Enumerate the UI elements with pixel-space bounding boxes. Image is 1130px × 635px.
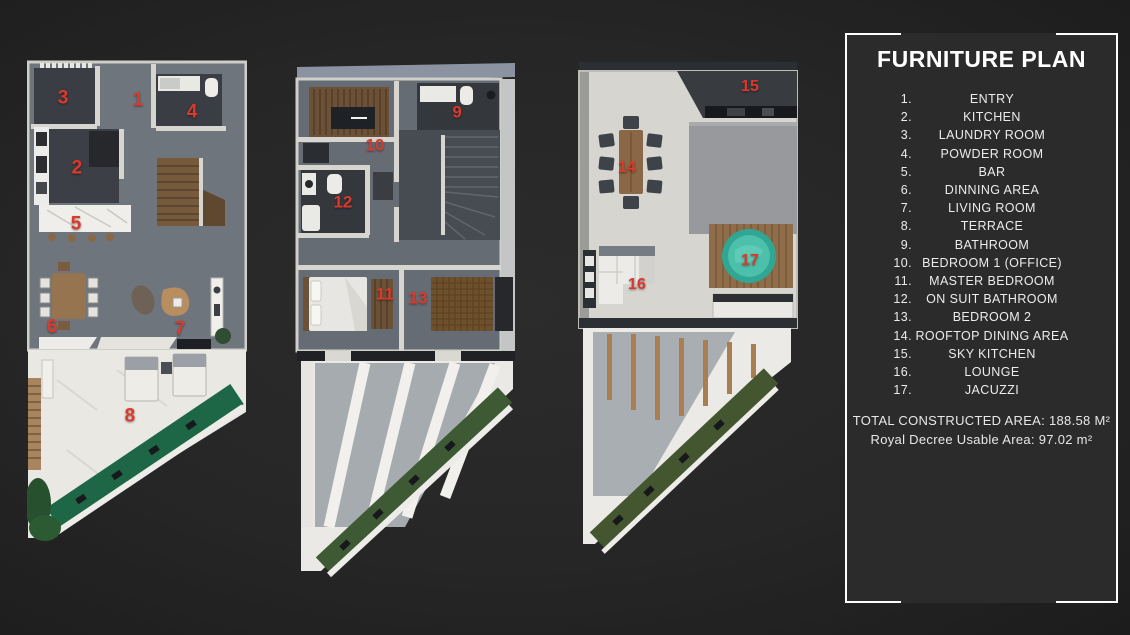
- rooftop-plan: 15141716: [577, 60, 799, 560]
- legend-item-number: 12.: [845, 292, 912, 306]
- legend-item-label: LIVING ROOM: [912, 201, 1072, 215]
- room-number-6: 6: [47, 318, 58, 337]
- legend-item-label: ROOFTOP DINING AREA: [912, 329, 1072, 343]
- page-title: FURNITURE PLAN: [845, 46, 1118, 73]
- legend-item: 4. POWDER ROOM: [845, 145, 1118, 163]
- room-number-5: 5: [71, 214, 82, 233]
- legend-item: 3. LAUNDRY ROOM: [845, 126, 1118, 144]
- legend-item: 14. ROOFTOP DINING AREA: [845, 326, 1118, 344]
- legend-item-label: MASTER BEDROOM: [912, 274, 1072, 288]
- legend-item-number: 2.: [845, 110, 912, 124]
- furniture-plan-sheet: 31425678: [0, 0, 1130, 635]
- room-number-7: 7: [175, 320, 186, 339]
- room-number-8: 8: [125, 406, 136, 425]
- legend-item-number: 10.: [845, 256, 912, 270]
- rooftop-markers: 15141716: [577, 60, 799, 560]
- legend-item-number: 4.: [845, 147, 912, 161]
- room-number-9: 9: [452, 104, 461, 121]
- panel-frame-top-right-bracket: [1056, 33, 1118, 35]
- room-number-10: 10: [365, 136, 384, 153]
- legend-item-label: BEDROOM 2: [912, 310, 1072, 324]
- legend-item-number: 14.: [845, 329, 912, 343]
- legend-item-label: ON SUIT BATHROOM: [912, 292, 1072, 306]
- panel-frame-bottom-left-bracket: [845, 601, 901, 603]
- legend-item: 15. SKY KITCHEN: [845, 345, 1118, 363]
- room-number-4: 4: [187, 102, 198, 121]
- legend-item: 6. DINNING AREA: [845, 181, 1118, 199]
- legend-item-label: BAR: [912, 165, 1072, 179]
- legend-item: 11. MASTER BEDROOM: [845, 272, 1118, 290]
- usable-area: Royal Decree Usable Area: 97.02 m²: [845, 430, 1118, 449]
- legend-item-label: LOUNGE: [912, 365, 1072, 379]
- area-summary: TOTAL CONSTRUCTED AREA: 188.58 M² Royal …: [845, 411, 1118, 449]
- room-number-12: 12: [333, 194, 352, 211]
- legend-item-number: 8.: [845, 219, 912, 233]
- legend-item-number: 6.: [845, 183, 912, 197]
- room-number-16: 16: [628, 277, 646, 293]
- legend-item-label: BEDROOM 1 (OFFICE): [912, 256, 1072, 270]
- legend-item-number: 16.: [845, 365, 912, 379]
- room-number-13: 13: [409, 289, 428, 306]
- first-floor-plan: 910121113: [295, 57, 517, 577]
- legend-item: 7. LIVING ROOM: [845, 199, 1118, 217]
- legend-item: 10. BEDROOM 1 (OFFICE): [845, 254, 1118, 272]
- legend-item-label: DINNING AREA: [912, 183, 1072, 197]
- legend-item-number: 17.: [845, 383, 912, 397]
- legend-item: 17. JACUZZI: [845, 381, 1118, 399]
- room-number-15: 15: [741, 79, 759, 95]
- legend-item: 13. BEDROOM 2: [845, 308, 1118, 326]
- panel-frame-top-left-bracket: [845, 33, 901, 35]
- legend-item-label: POWDER ROOM: [912, 147, 1072, 161]
- legend-item: 16. LOUNGE: [845, 363, 1118, 381]
- room-number-11: 11: [376, 286, 394, 303]
- legend-item-label: KITCHEN: [912, 110, 1072, 124]
- legend-item: 1. ENTRY: [845, 90, 1118, 108]
- legend-panel: FURNITURE PLAN 1. ENTRY 2. KITCHEN 3. LA…: [845, 33, 1118, 603]
- total-constructed-area: TOTAL CONSTRUCTED AREA: 188.58 M²: [845, 411, 1118, 430]
- legend-item: 9. BATHROOM: [845, 236, 1118, 254]
- legend-item: 2. KITCHEN: [845, 108, 1118, 126]
- legend-item-number: 1.: [845, 92, 912, 106]
- legend-item-number: 3.: [845, 128, 912, 142]
- room-number-17: 17: [741, 253, 759, 269]
- ground-floor-plan: 31425678: [27, 60, 247, 545]
- room-number-1: 1: [133, 90, 144, 109]
- legend-item: 8. TERRACE: [845, 217, 1118, 235]
- legend-item-label: SKY KITCHEN: [912, 347, 1072, 361]
- legend-item-label: ENTRY: [912, 92, 1072, 106]
- ground-floor-markers: 31425678: [27, 60, 247, 545]
- legend-item-number: 13.: [845, 310, 912, 324]
- legend-item-number: 15.: [845, 347, 912, 361]
- legend-item: 5. BAR: [845, 163, 1118, 181]
- legend-item-label: JACUZZI: [912, 383, 1072, 397]
- legend-item-number: 5.: [845, 165, 912, 179]
- legend-item-number: 11.: [845, 274, 912, 288]
- legend-item-number: 9.: [845, 238, 912, 252]
- first-floor-markers: 910121113: [295, 57, 517, 577]
- legend-item-number: 7.: [845, 201, 912, 215]
- room-number-2: 2: [72, 159, 83, 178]
- legend-list: 1. ENTRY 2. KITCHEN 3. LAUNDRY ROOM 4. P…: [845, 90, 1118, 399]
- legend-item-label: TERRACE: [912, 219, 1072, 233]
- room-number-14: 14: [618, 160, 636, 176]
- legend-item-label: BATHROOM: [912, 238, 1072, 252]
- legend-item-label: LAUNDRY ROOM: [912, 128, 1072, 142]
- room-number-3: 3: [58, 88, 69, 107]
- panel-frame-bottom-right-bracket: [1056, 601, 1118, 603]
- legend-item: 12. ON SUIT BATHROOM: [845, 290, 1118, 308]
